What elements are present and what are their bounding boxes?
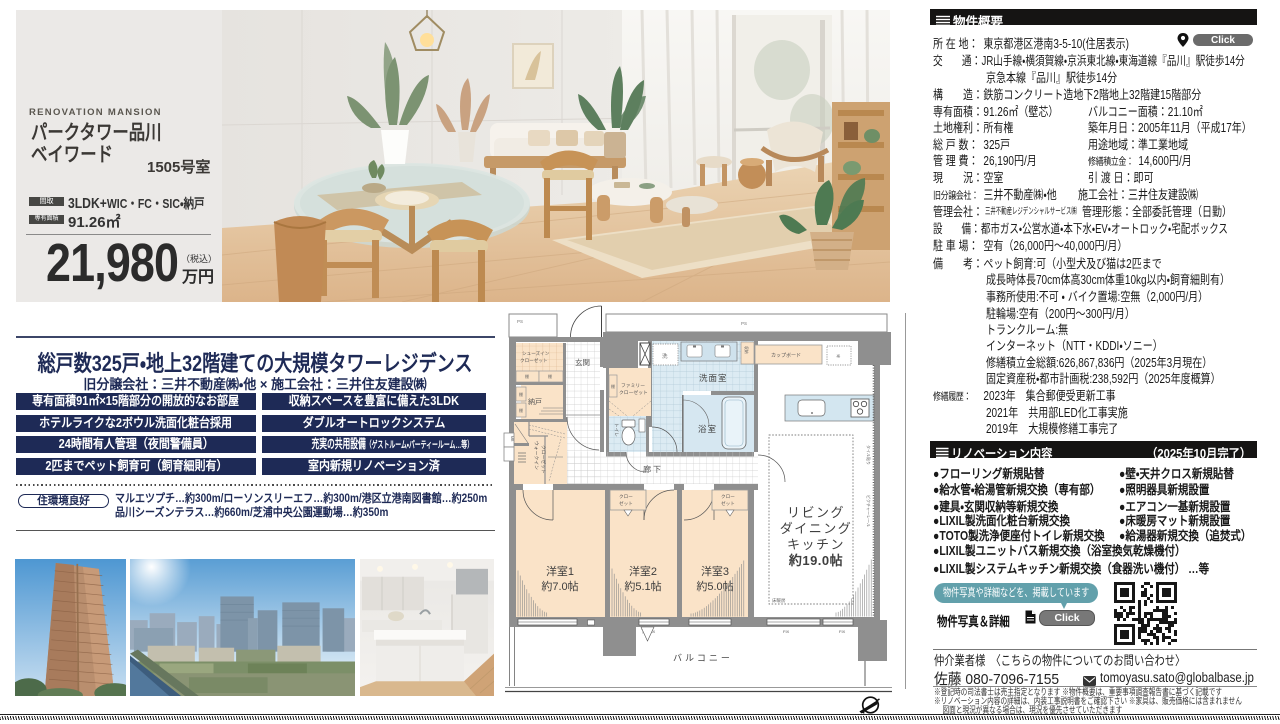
svg-text:PS: PS [517,319,523,324]
svg-text:MB: MB [510,436,514,442]
svg-text:クローゼット: クローゼット [619,389,648,396]
svg-text:ウォークイン: ウォークイン [533,441,540,470]
svg-text:カップボード: カップボード [771,352,801,359]
svg-text:洋室3: 洋室3 [701,564,729,578]
svg-text:シューズイン: シューズイン [522,350,550,357]
svg-text:床暖房: 床暖房 [772,597,786,604]
svg-text:リビング: リビング [787,505,845,520]
svg-text:棚: 棚 [548,373,552,379]
svg-text:棚: 棚 [519,391,523,397]
svg-text:キッチン: キッチン [787,537,845,552]
svg-text:棚: 棚 [519,407,523,413]
svg-text:バルコニー: バルコニー [673,653,733,663]
svg-text:クローゼット: クローゼット [540,445,547,474]
svg-text:洋室2: 洋室2 [629,564,657,578]
svg-text:棚: 棚 [611,383,615,389]
svg-text:約5.1帖: 約5.1帖 [624,579,661,593]
svg-text:ピクチャーレール: ピクチャーレール [866,495,872,527]
svg-text:約7.0帖: 約7.0帖 [541,579,578,593]
svg-text:棚: 棚 [525,373,529,379]
svg-text:ゼット: ゼット [619,500,633,506]
svg-text:クローゼット: クローゼット [520,357,548,364]
svg-text:FIX: FIX [783,629,790,634]
svg-text:洋室1: 洋室1 [546,564,574,578]
svg-text:廊下: 廊下 [643,464,663,474]
svg-text:ダイニング: ダイニング [780,521,853,536]
svg-text:トイレ: トイレ [614,423,619,437]
svg-text:ゼット: ゼット [721,500,735,506]
svg-text:PS: PS [741,321,747,326]
svg-text:約19.0帖: 約19.0帖 [788,553,843,568]
svg-text:浴室: 浴室 [698,424,717,434]
svg-text:ファミリー: ファミリー [621,383,645,389]
svg-text:納戸: 納戸 [528,397,542,406]
svg-text:FIX: FIX [839,629,846,634]
svg-text:※: ※ [836,353,841,360]
svg-text:収納: 収納 [744,346,749,354]
svg-text:玄関: 玄関 [575,357,590,367]
svg-text:洗: 洗 [662,352,668,360]
svg-text:タイル貼り: タイル貼り [866,445,872,465]
svg-text:約5.0帖: 約5.0帖 [696,579,733,593]
svg-text:洗面室: 洗面室 [699,373,728,383]
